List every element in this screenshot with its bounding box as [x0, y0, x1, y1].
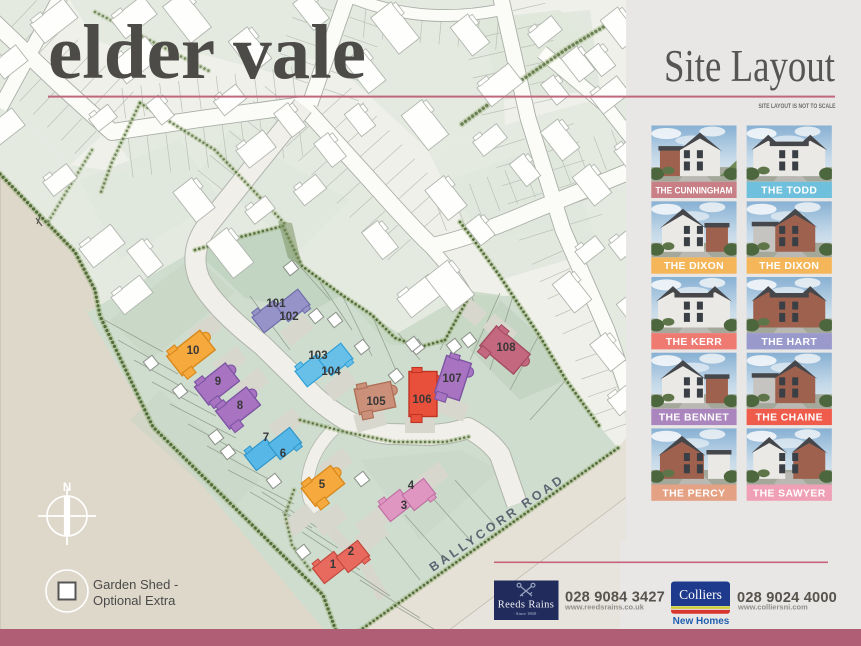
svg-text:· Since 1868 ·: · Since 1868 ·: [513, 611, 539, 616]
svg-text:105: 105: [366, 396, 386, 408]
svg-text:THE KERR: THE KERR: [666, 337, 722, 348]
svg-text:THE CUNNINGHAM: THE CUNNINGHAM: [655, 186, 732, 197]
svg-text:www.reedsrains.co.uk: www.reedsrains.co.uk: [564, 603, 645, 612]
svg-text:THE TODD: THE TODD: [761, 186, 817, 197]
svg-text:THE DIXON: THE DIXON: [759, 261, 819, 272]
svg-text:THE BENNET: THE BENNET: [659, 413, 730, 424]
svg-text:9: 9: [215, 376, 221, 388]
svg-text:THE PERCY: THE PERCY: [662, 488, 725, 499]
svg-text:3: 3: [401, 500, 407, 512]
svg-text:102: 102: [279, 311, 298, 323]
svg-text:1: 1: [330, 559, 337, 571]
svg-text:THE SAWYER: THE SAWYER: [753, 488, 826, 499]
svg-text:Optional Extra: Optional Extra: [93, 593, 176, 608]
svg-text:THE DIXON: THE DIXON: [664, 261, 724, 272]
svg-text:www.colliersni.com: www.colliersni.com: [737, 603, 808, 612]
svg-text:6: 6: [280, 448, 286, 460]
svg-text:2: 2: [348, 546, 354, 558]
svg-text:101: 101: [266, 298, 286, 310]
svg-text:108: 108: [496, 342, 516, 354]
svg-text:Site Layout: Site Layout: [664, 40, 835, 91]
svg-text:SITE LAYOUT IS NOT TO SCALE: SITE LAYOUT IS NOT TO SCALE: [759, 103, 837, 110]
svg-text:8: 8: [237, 400, 244, 412]
svg-text:7: 7: [263, 432, 269, 444]
svg-text:Colliers: Colliers: [679, 587, 722, 602]
svg-text:N: N: [63, 482, 71, 494]
svg-text:THE CHAINE: THE CHAINE: [755, 413, 823, 424]
svg-text:Reeds Rains: Reeds Rains: [498, 600, 555, 611]
svg-text:10: 10: [187, 345, 200, 357]
svg-text:5: 5: [319, 479, 326, 491]
svg-text:elder vale: elder vale: [48, 9, 366, 95]
svg-text:107: 107: [442, 373, 461, 385]
svg-text:New Homes: New Homes: [673, 616, 730, 627]
svg-text:4: 4: [408, 480, 415, 492]
svg-text:103: 103: [308, 350, 327, 362]
svg-text:THE HART: THE HART: [761, 337, 817, 348]
svg-text:104: 104: [321, 366, 341, 378]
svg-text:Garden Shed -: Garden Shed -: [93, 577, 178, 592]
svg-text:106: 106: [412, 394, 431, 406]
